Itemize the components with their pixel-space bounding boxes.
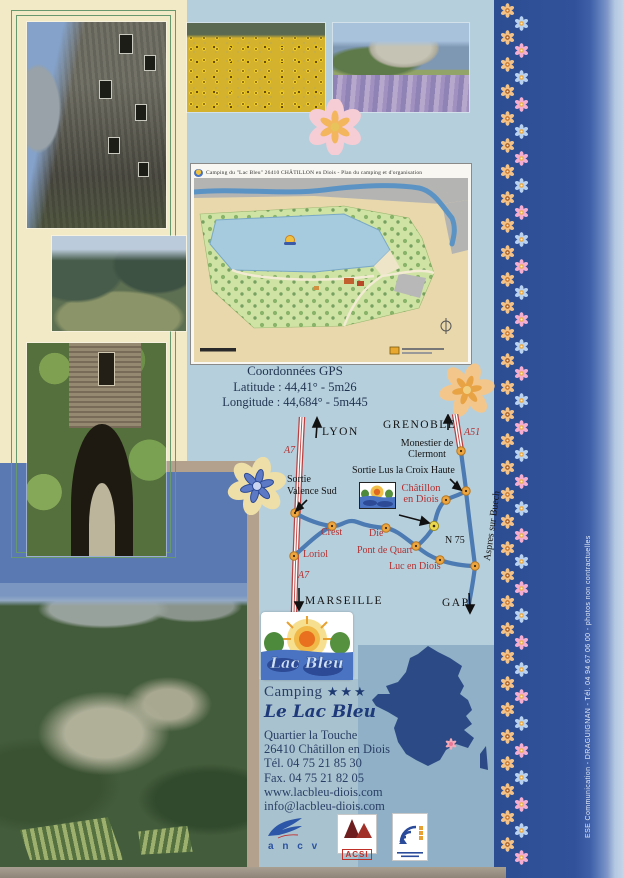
band-flower-icon: [500, 138, 515, 153]
tan-strip-vertical: [247, 461, 259, 872]
map-inset-logo-icon: [360, 483, 395, 508]
band-flower-icon: [514, 312, 529, 327]
band-flower-icon: [514, 124, 529, 139]
archway-opening: [71, 424, 132, 556]
label-gap: GAP: [442, 597, 470, 609]
label-chatillon: Châtillon en Diois: [399, 484, 443, 505]
band-flower-icon: [514, 43, 529, 58]
road-map: LYON A7 GRENOBLE A51 Monestier de Clermo…: [279, 414, 503, 622]
info-camping-line: Camping ★★★: [264, 684, 434, 701]
gps-title: Coordonnées GPS: [200, 363, 390, 379]
band-flower-icon: [514, 70, 529, 85]
label-a7-top: A7: [284, 445, 295, 456]
label-grenoble: GRENOBLE: [383, 419, 456, 431]
gps-block: Coordonnées GPS Latitude : 44,41° - 5m26…: [200, 363, 390, 409]
window-detail: [108, 137, 120, 154]
band-flower-icon: [500, 837, 515, 852]
label-pont-de-quart: Pont de Quart: [357, 545, 413, 556]
band-flower-icon: [500, 191, 515, 206]
label-sortie-valence: Sortie Valence Sud: [287, 474, 337, 497]
band-flower-icon: [500, 353, 515, 368]
band-flower-icon: [514, 285, 529, 300]
band-flower-icon: [500, 756, 515, 771]
info-phone: Tél. 04 75 21 85 30: [264, 756, 434, 770]
band-flower-icon: [500, 810, 515, 825]
label-monestier: Monestier de Clermont: [397, 439, 457, 460]
window-detail: [99, 80, 112, 99]
window-detail: [98, 352, 116, 386]
label-a7-bottom: A7: [298, 570, 309, 581]
partner-logo-federation: [392, 813, 428, 861]
band-flower-icon: [514, 447, 529, 462]
partner-logo-acsi: ACSI: [337, 814, 377, 854]
band-flower-icon: [514, 554, 529, 569]
brochure-page: ESE Communication - DRAGUIGNAN - Tél. 04…: [0, 0, 624, 878]
band-flower-icon: [514, 474, 529, 489]
band-flower-icon: [500, 272, 515, 287]
partner-logo-ancv: a n c v: [266, 816, 328, 854]
band-flower-icon: [514, 97, 529, 112]
band-flower-icon: [500, 783, 515, 798]
band-flower-icon: [514, 850, 529, 865]
band-flower-icon: [500, 84, 515, 99]
band-flower-icon: [514, 232, 529, 247]
band-flower-icon: [500, 245, 515, 260]
acsi-label: ACSI: [342, 849, 371, 860]
band-flower-icon: [514, 528, 529, 543]
federation-arcs-icon: [393, 814, 427, 860]
band-flower-icon: [514, 689, 529, 704]
band-flower-icon: [514, 716, 529, 731]
band-flower-icon: [500, 299, 515, 314]
label-n75: N 75: [445, 535, 465, 546]
window-detail: [138, 162, 149, 177]
info-fax: Fax. 04 75 21 82 05: [264, 771, 434, 785]
band-flower-icon: [514, 420, 529, 435]
band-flower-icon: [500, 30, 515, 45]
band-flower-icon: [500, 729, 515, 744]
campground-map-logo-icon: [194, 169, 203, 177]
photo-mountain-landscape: [0, 583, 247, 872]
band-flower-icon: [514, 151, 529, 166]
campground-map-title: Camping du "Lac Bleu" 26410 CHÂTILLON en…: [194, 167, 468, 178]
band-flower-icon: [514, 635, 529, 650]
band-flower-icon: [500, 676, 515, 691]
info-website: www.lacbleu-diois.com: [264, 785, 434, 799]
print-credit-text: ESE Communication - DRAGUIGNAN - Tél. 04…: [584, 535, 594, 838]
vineyard-patch: [20, 817, 124, 860]
band-flower-icon: [500, 326, 515, 341]
decor-flower-orange: [438, 363, 496, 417]
logo-script-text: Lac Bleu: [269, 654, 344, 672]
band-flower-icon: [514, 501, 529, 516]
label-loriol: Loriol: [303, 549, 328, 560]
band-flower-icon: [514, 581, 529, 596]
label-sortie-lus: Sortie Lus la Croix Haute: [352, 465, 455, 476]
band-flower-icon: [514, 205, 529, 220]
label-lyon: LYON: [322, 426, 359, 438]
bottom-scan-strip: [0, 867, 506, 878]
band-flower-icon: [500, 57, 515, 72]
ancv-label: a n c v: [268, 841, 320, 852]
band-flower-icon: [514, 366, 529, 381]
info-block: Camping ★★★ Le Lac Bleu Quartier la Touc…: [264, 684, 434, 813]
label-marseille: MARSEILLE: [305, 595, 383, 607]
band-flower-icon: [500, 649, 515, 664]
band-flower-icon: [500, 702, 515, 717]
band-flower-icon: [500, 218, 515, 233]
map-inset-logo-box: [359, 482, 396, 509]
info-address-2: 26410 Châtillon en Diois: [264, 742, 434, 756]
window-detail: [119, 34, 133, 54]
side-band: [494, 0, 624, 878]
decor-flower-pink: [302, 99, 368, 155]
band-flower-icon: [500, 111, 515, 126]
band-flower-icon: [514, 16, 529, 31]
label-die: Die: [369, 528, 383, 539]
band-flower-icon: [514, 823, 529, 838]
gps-latitude: Latitude : 44,41° - 5m26: [200, 380, 390, 395]
info-name: Le Lac Bleu: [264, 702, 434, 722]
photo-valley-village: [52, 236, 186, 331]
lac-bleu-logo-box: Lac Bleu: [261, 612, 353, 680]
info-address-1: Quartier la Touche: [264, 728, 434, 742]
band-flower-icon: [514, 259, 529, 274]
acsi-tents-icon: [339, 815, 375, 839]
road-map-canvas: [279, 414, 503, 622]
three-stars: ★★★: [327, 684, 368, 699]
ancv-bird-icon: [266, 816, 306, 840]
band-flower-icon: [500, 380, 515, 395]
vineyard-patch: [138, 826, 192, 855]
band-flower-icon: [514, 608, 529, 623]
band-flower-icon: [500, 164, 515, 179]
band-flower-icon: [500, 622, 515, 637]
band-flower-icon: [514, 339, 529, 354]
label-crest: Crest: [321, 527, 342, 538]
stone-wall: [69, 343, 141, 428]
label-luc-en-diois: Luc en Diois: [389, 561, 441, 572]
band-flower-icon: [514, 797, 529, 812]
band-flower-icon: [514, 393, 529, 408]
photo-stone-tower: [27, 22, 166, 228]
label-a51: A51: [464, 427, 480, 438]
band-flower-icon: [500, 3, 515, 18]
band-flower-icon: [514, 662, 529, 677]
info-email: info@lacbleu-diois.com: [264, 799, 434, 813]
band-flower-icon: [514, 178, 529, 193]
gps-longitude: Longitude : 44,684° - 5m445: [200, 395, 390, 410]
band-flower-icon: [514, 743, 529, 758]
photo-stone-archway: [27, 343, 166, 556]
campground-map-canvas: [194, 178, 468, 362]
window-detail: [135, 104, 147, 121]
campground-map: Camping du "Lac Bleu" 26410 CHÂTILLON en…: [190, 163, 472, 365]
lac-bleu-logo-icon: Lac Bleu: [261, 612, 353, 680]
band-flower-icon: [514, 770, 529, 785]
window-detail: [144, 55, 156, 71]
